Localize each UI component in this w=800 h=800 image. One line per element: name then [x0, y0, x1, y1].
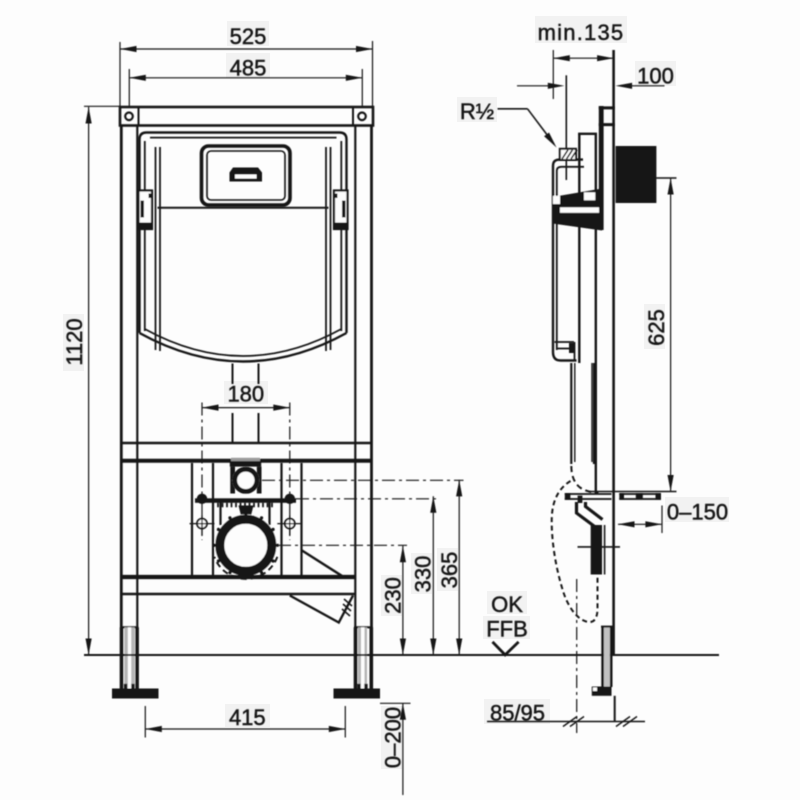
svg-text:OK: OK: [491, 592, 523, 617]
svg-text:FFB: FFB: [486, 617, 528, 642]
svg-text:0–150: 0–150: [667, 500, 728, 525]
svg-text:85/95: 85/95: [490, 701, 545, 726]
svg-text:365: 365: [437, 552, 462, 589]
svg-text:180: 180: [227, 382, 264, 407]
svg-text:330: 330: [411, 556, 436, 593]
svg-text:415: 415: [229, 705, 266, 730]
svg-text:625: 625: [644, 309, 669, 346]
svg-text:0–200: 0–200: [381, 707, 406, 768]
svg-text:R½: R½: [460, 99, 494, 124]
svg-text:525: 525: [230, 24, 267, 49]
svg-text:485: 485: [230, 56, 267, 81]
svg-text:1120: 1120: [62, 318, 87, 365]
svg-text:min.135: min.135: [538, 20, 625, 45]
svg-text:230: 230: [381, 577, 406, 614]
svg-text:100: 100: [637, 64, 674, 89]
